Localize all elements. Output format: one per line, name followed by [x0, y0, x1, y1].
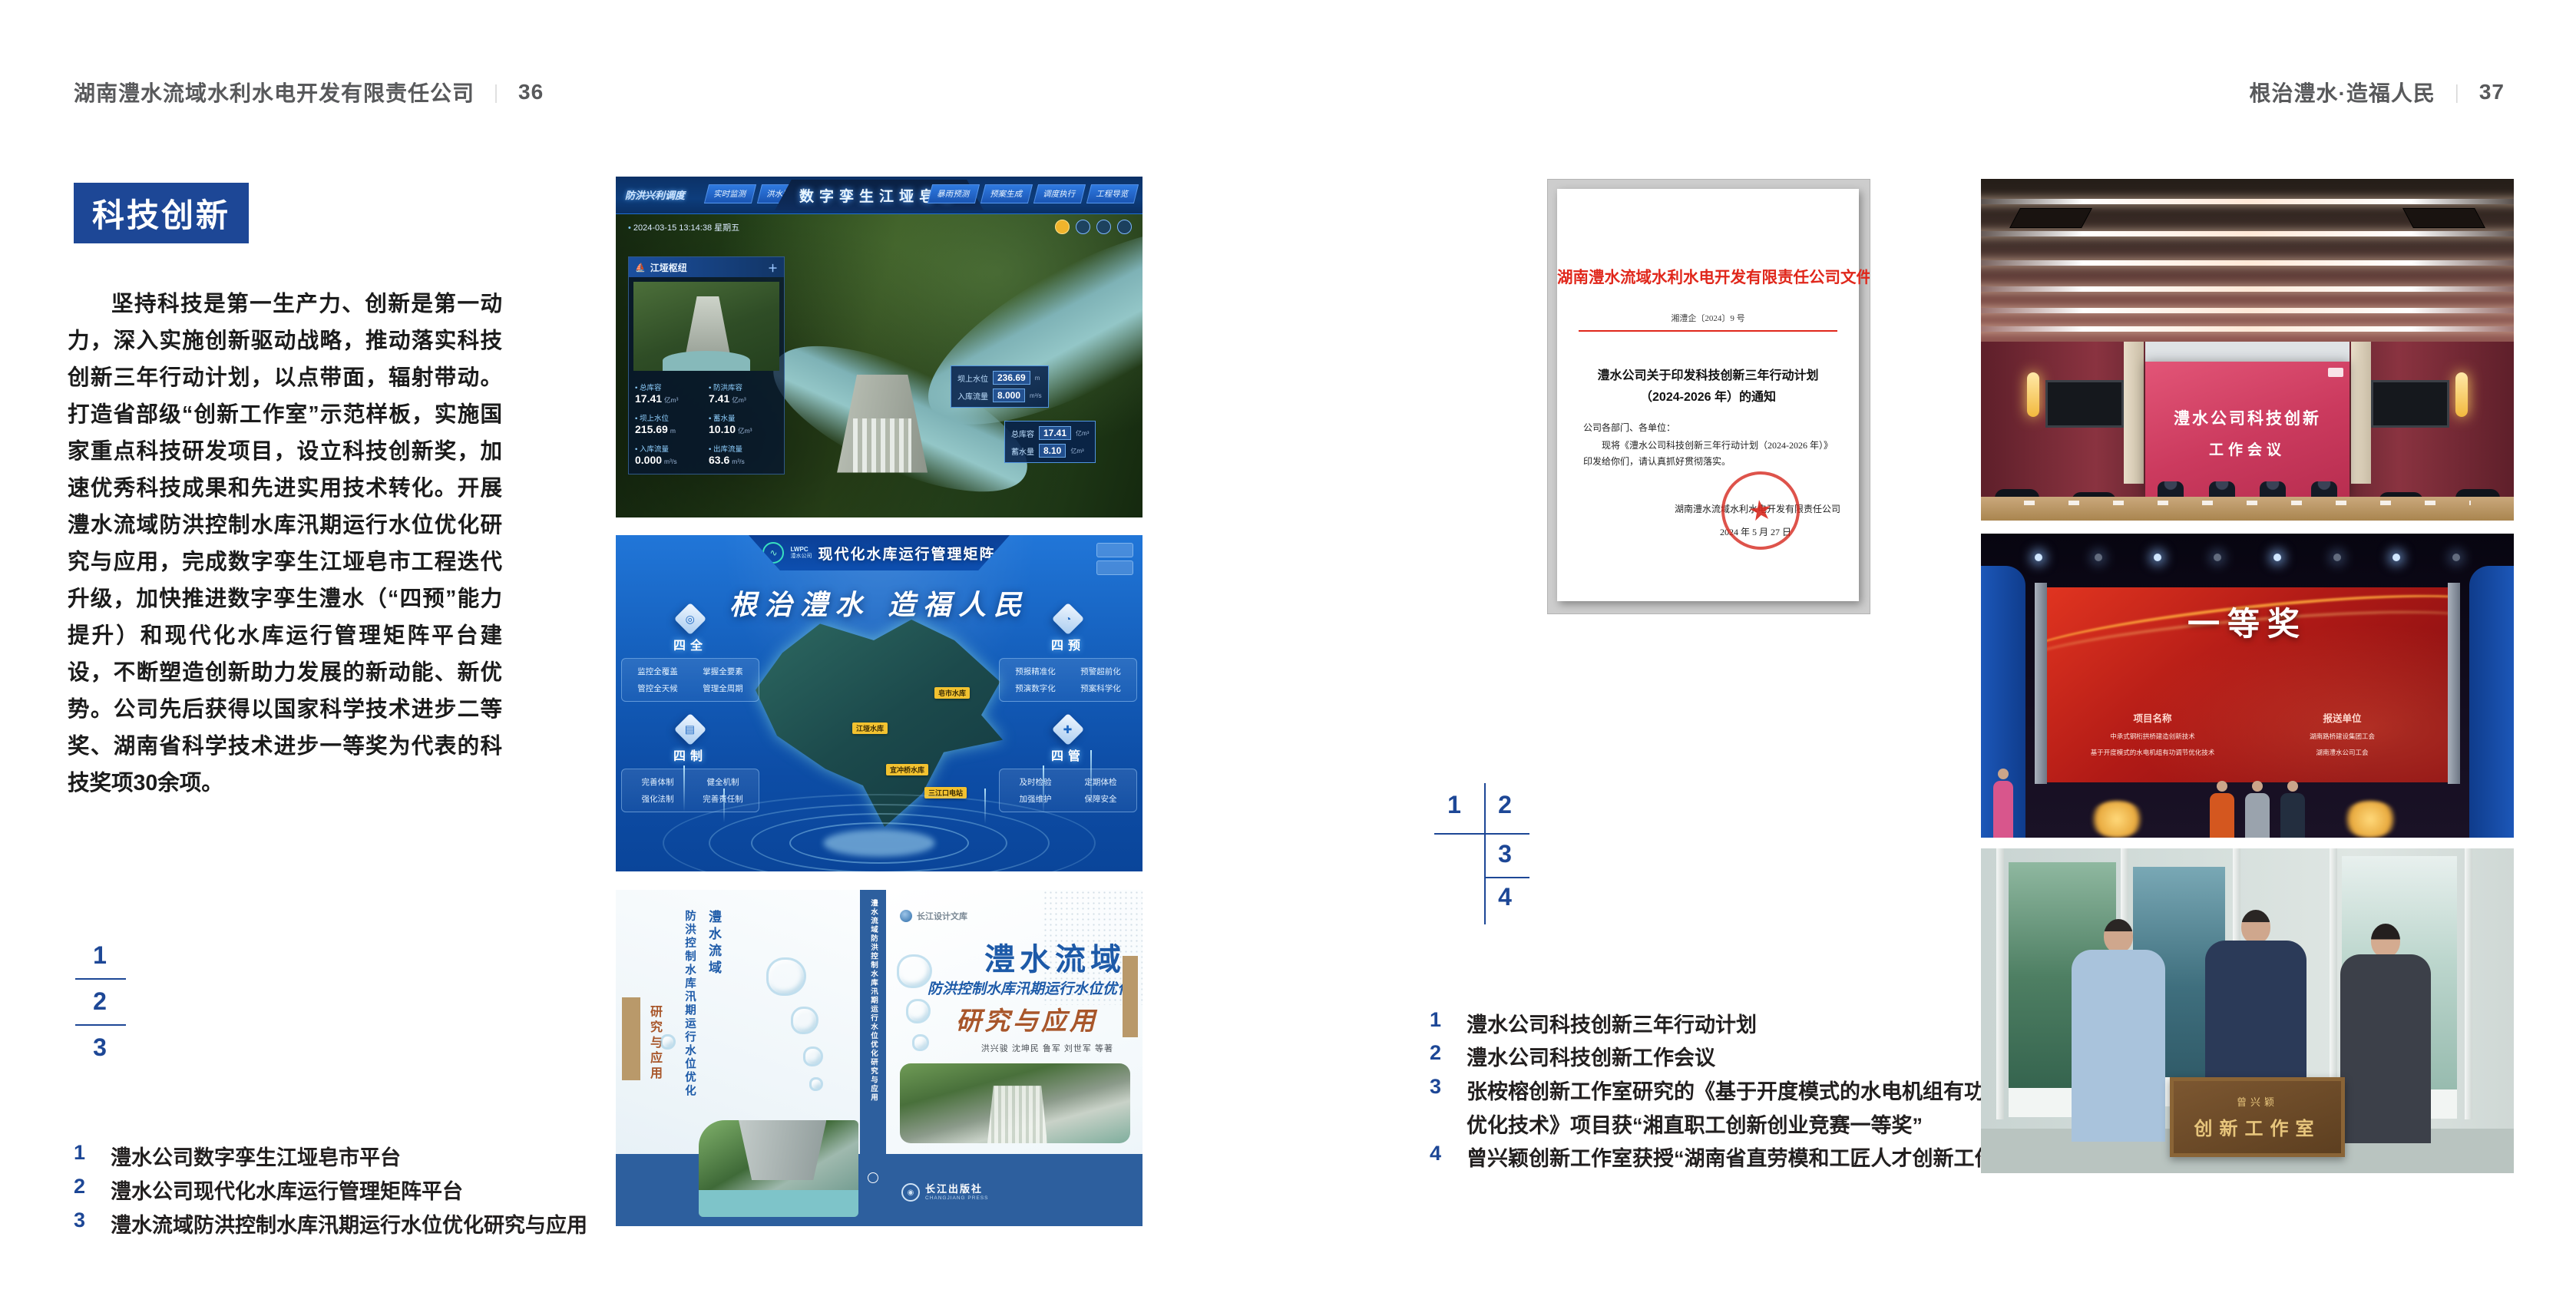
right-tab-group: 暴雨预测 预案生成 调度执行 工程导览	[930, 184, 1136, 203]
company-name: 湖南澧水流域水利水电开发有限责任公司	[74, 77, 475, 107]
water-droplet	[809, 1077, 823, 1091]
dam-thumbnail	[683, 296, 733, 355]
toolbar-icons	[1055, 220, 1132, 234]
spotlight-icon	[2452, 554, 2460, 561]
group-name: 四全	[673, 635, 707, 653]
caption-row: 2 澧水公司现代化水库运行管理矩阵平台	[74, 1175, 463, 1208]
glow-orb	[2342, 801, 2399, 838]
tab-rain-forecast[interactable]: 暴雨预测	[928, 184, 980, 203]
stat-unit: m³/s	[664, 458, 677, 465]
dam-wall	[739, 1120, 826, 1180]
caption-line2: 优化技术》项目获“湘直职工创新创业竞赛一等奖”	[1467, 1109, 2026, 1142]
wall-tv	[2045, 380, 2124, 428]
document-masthead: 湖南澧水流域水利水电开发有限责任公司文件	[1557, 264, 1859, 287]
caption-text: 澧水公司科技创新工作会议	[1467, 1041, 1715, 1075]
person-right	[2340, 924, 2431, 1143]
figure-index-2: 2	[84, 987, 115, 1016]
tooltip-value: 236.69	[993, 371, 1030, 385]
page-number: 36	[518, 80, 544, 104]
group-item: 定期体检	[1070, 776, 1132, 788]
spine-title: 澧水流域防洪控制水库汛期运行水位优化研究与应用	[868, 899, 878, 1103]
body-paragraph: 坚持科技是第一生产力、创新是第一动力，深入实施创新驱动战略，推动落实科技创新三年…	[68, 286, 502, 802]
publisher-name: 长江出版社	[925, 1183, 988, 1195]
tab-project-tour[interactable]: 工程导览	[1086, 184, 1139, 203]
station-panel-header: ⛵ 江垭枢纽 ＋	[629, 257, 784, 277]
section-title: 科技创新	[74, 183, 249, 243]
document-title-line1: 澧水公司关于印发科技创新三年行动计划	[1557, 365, 1859, 387]
tooltip-row: 坝上水位 236.69 m	[957, 371, 1042, 385]
caption-text: 澧水公司现代化水库运行管理矩阵平台	[111, 1175, 463, 1208]
photo-innovation-meeting: 澧水公司科技创新 工作会议	[1981, 179, 2514, 521]
water-droplet	[660, 1034, 676, 1050]
matrix-title: 现代化水库运行管理矩阵	[818, 543, 995, 564]
red-rule	[1579, 330, 1837, 332]
figure-official-document: 湖南澧水流域水利水电开发有限责任公司文件 湘澧企〔2024〕9 号 澧水公司关于…	[1547, 179, 1870, 614]
figure-management-matrix: ∿ LWPC 澧水公司 现代化水库运行管理矩阵 根治澧水 造福人民 皂市水库 江…	[616, 535, 1143, 871]
tooltip-unit: 亿m³	[1076, 429, 1089, 438]
dashboard-brand: 防洪兴利调度	[625, 187, 685, 202]
group-item: 及时检验	[1004, 776, 1066, 788]
tooltip-label: 总库容	[1011, 428, 1034, 439]
stat-label: 坝上水位	[635, 412, 704, 423]
logo-abbr: LWPC	[790, 547, 812, 554]
group-item: 管控全天候	[627, 683, 689, 694]
caption-row: 3 张桉榕创新工作室研究的《基于开度模式的水电机组有功调节 优化技术》项目获“湘…	[1430, 1075, 2026, 1142]
rostrum-people	[2145, 481, 2349, 498]
series-logo-icon	[900, 910, 912, 922]
group-item: 完善体制	[627, 776, 689, 788]
caption-text: 澧水流域防洪控制水库汛期运行水位优化研究与应用	[111, 1208, 587, 1242]
caption-row: 1 澧水公司科技创新三年行动计划	[1430, 1008, 1757, 1042]
figure-index-4: 4	[1490, 883, 1520, 911]
stat-value: 7.41	[709, 392, 729, 405]
caption-row: 1 澧水公司数字孪生江垭皂市平台	[74, 1141, 401, 1175]
desk-papers	[2024, 501, 2472, 505]
cube-icon: ✚	[1052, 713, 1084, 746]
book-spine: 澧水流域防洪控制水库汛期运行水位优化研究与应用	[860, 890, 886, 1226]
group-siquan: ◎ 四全 监控全覆盖 掌握全要素 管控全天候 管理全周期	[625, 607, 756, 702]
logo-text: LWPC 澧水公司	[790, 547, 812, 559]
water-droplet	[803, 1046, 823, 1066]
tooltip-label: 入库流量	[957, 390, 988, 402]
stage-lights	[2035, 546, 2460, 569]
person-head	[1998, 769, 2009, 779]
stat-label: 防洪库容	[709, 382, 778, 392]
series-name: 长江设计文库	[917, 910, 967, 922]
map-label[interactable]: 宜冲桥水库	[886, 764, 928, 775]
light-pillar	[984, 789, 986, 824]
tailwater	[699, 1190, 858, 1217]
group-item: 管理全周期	[692, 683, 754, 694]
spotlight-icon	[2035, 554, 2042, 561]
meeting-screen: 澧水公司科技创新 工作会议	[2145, 362, 2349, 497]
stat-item: 坝上水位 215.69m	[635, 412, 704, 437]
wall-lamp	[2455, 372, 2468, 417]
stat-item: 总库容 17.41亿m³	[635, 382, 704, 406]
index-divider	[1484, 783, 1486, 924]
group-siyu: ◔ 四预 预报精准化 预警超前化 预演数字化 预案科学化	[1003, 607, 1133, 702]
award-unit: 湖南澧水公司工会	[2263, 748, 2422, 757]
tooltip-row: 蓄水量 8.10 亿m³	[1011, 444, 1089, 458]
caption-number: 1	[74, 1141, 92, 1165]
seated-person	[2209, 481, 2235, 498]
person-body	[2280, 793, 2305, 838]
sail-icon: ⛵	[635, 263, 646, 273]
wall-pillar	[2351, 342, 2371, 484]
water-droplet	[791, 1007, 818, 1034]
document-paper: 湖南澧水流域水利水电开发有限责任公司文件 湘澧企〔2024〕9 号 澧水公司关于…	[1557, 189, 1859, 601]
document-number: 湘澧企〔2024〕9 号	[1557, 312, 1859, 324]
caption-number: 3	[74, 1208, 92, 1232]
light-pillar	[1090, 750, 1092, 804]
award-title: 一等奖	[1981, 598, 2514, 645]
document-salutation: 公司各部门、各单位：	[1583, 421, 1675, 434]
stat-item: 出库流量 63.6m³/s	[709, 443, 778, 468]
figure-index-3: 3	[1490, 840, 1520, 868]
stat-label: 总库容	[635, 382, 704, 392]
spotlight-icon	[2273, 554, 2281, 561]
series-badge: 长江设计文库	[900, 910, 967, 922]
ceiling	[1981, 179, 2514, 342]
caption-text: 澧水公司科技创新三年行动计划	[1467, 1008, 1757, 1042]
stat-unit: 亿m³	[738, 427, 752, 435]
person-body	[2245, 793, 2270, 838]
caption-number: 3	[1430, 1075, 1448, 1099]
right-page-header: 根治澧水·造福人民 ｜ 37	[2250, 77, 2505, 107]
map-tooltip: 坝上水位 236.69 m 入库流量 8.000 m³/s	[951, 365, 1049, 408]
tooltip-row: 总库容 17.41 亿m³	[1011, 426, 1089, 440]
light-strip	[1981, 286, 2514, 292]
awardee-silhouette	[2280, 781, 2305, 838]
award-table: 项目名称 报送单位 中承式钢桁拱桥建造创新技术 湖南路桥建设集团工会 基于开度模…	[2073, 710, 2422, 757]
caption-number: 2	[1430, 1041, 1448, 1065]
person-head	[2104, 919, 2133, 953]
tooltip-value: 17.41	[1039, 426, 1071, 440]
person-head	[2287, 781, 2298, 792]
stat-label: 入库流量	[635, 443, 704, 454]
station-panel: ⛵ 江垭枢纽 ＋ 总库容 17.41亿m³ 防洪库容 7.41亿m³ 坝上水位	[628, 256, 785, 474]
group-name: 四制	[673, 746, 707, 764]
stat-item: 防洪库容 7.41亿m³	[709, 382, 778, 406]
tooltip-label: 坝上水位	[957, 372, 988, 384]
layers-icon[interactable]	[1076, 220, 1090, 234]
awardee-silhouette	[2245, 781, 2270, 838]
publisher-name-en: CHANGJIANG PRESS	[925, 1195, 988, 1202]
caption-text: 曾兴颖创新工作室获授“湖南省直劳模和工匠人才创新工作室”	[1467, 1142, 2026, 1175]
light-pillar	[683, 765, 685, 812]
left-page-header: 湖南澧水流域水利水电开发有限责任公司 ｜ 36	[74, 77, 544, 107]
group-item: 健全机制	[692, 776, 754, 788]
tooltip-value: 8.10	[1039, 444, 1066, 458]
tooltip-value: 8.000	[993, 388, 1025, 402]
glow-orb	[2088, 801, 2145, 838]
person-body	[2072, 950, 2165, 1142]
calligraphy-slogan: 根治澧水 造福人民	[729, 583, 1030, 623]
document-title: 澧水公司关于印发科技创新三年行动计划 （2024-2026 年）的通知	[1557, 365, 1859, 408]
matrix-header: ∿ LWPC 澧水公司 现代化水库运行管理矩阵	[749, 535, 1010, 570]
caption-text: 张桉榕创新工作室研究的《基于开度模式的水电机组有功调节 优化技术》项目获“湘直职…	[1467, 1075, 2026, 1142]
front-title-main: 研究与应用	[956, 1000, 1098, 1037]
caption-line1: 张桉榕创新工作室研究的《基于开度模式的水电机组有功调节	[1467, 1075, 2026, 1109]
spine-logo-icon	[868, 1172, 878, 1183]
cube-icon: ◔	[1052, 603, 1084, 635]
screen-title-line1: 澧水公司科技创新	[2174, 406, 2321, 429]
caption-number: 1	[1430, 1008, 1448, 1032]
award-col-header: 报送单位	[2263, 710, 2422, 725]
award-col-header: 项目名称	[2073, 710, 2232, 725]
figure-book-cover: 澧水流域 防洪控制水库汛期运行水位优化 研究与应用 长江设计文库 澧水流域 防洪…	[616, 890, 1143, 1226]
person-body	[2340, 954, 2431, 1143]
award-project: 基于开度模式的水电机组有功调节优化技术	[2073, 748, 2232, 757]
stat-unit: 亿m³	[664, 396, 678, 404]
photo-award-ceremony: 一等奖 项目名称 报送单位 中承式钢桁拱桥建造创新技术 湖南路桥建设集团工会 基…	[1981, 534, 2514, 838]
group-item: 预案科学化	[1070, 683, 1132, 694]
seated-person	[2158, 481, 2184, 498]
group-panel: 预报精准化 预警超前化 预演数字化 预案科学化	[999, 658, 1137, 702]
person-body	[2210, 793, 2234, 838]
alert-icon[interactable]	[1055, 220, 1070, 234]
cube-icon: ◎	[674, 603, 706, 635]
expand-icon[interactable]: ＋	[768, 260, 778, 275]
tooltip-unit: m³/s	[1030, 392, 1042, 399]
tab-realtime-monitor[interactable]: 实时监测	[704, 184, 756, 203]
tab-plan-generate[interactable]: 预案生成	[980, 184, 1033, 203]
stat-label: 蓄水量	[709, 412, 778, 423]
tan-block	[1123, 956, 1138, 1037]
light-strip	[1981, 326, 2514, 332]
plaque-line1: 曾兴颖	[2237, 1094, 2278, 1109]
water-thumbnail	[663, 351, 750, 371]
award-project: 中承式钢桁拱桥建造创新技术	[2073, 732, 2232, 741]
slogan-text: 根治澧水·造福人民	[2250, 77, 2435, 107]
group-panel: 监控全覆盖 掌握全要素 管控全天候 管理全周期	[621, 658, 759, 702]
map-label[interactable]: 江垭水库	[852, 722, 888, 734]
stat-value: 10.10	[709, 423, 736, 435]
tan-block	[622, 997, 640, 1080]
front-title-region: 澧水流域	[984, 934, 1126, 979]
tooltip-unit: m	[1035, 375, 1040, 382]
back-title-region: 澧水流域	[704, 910, 723, 1098]
screen-title-line2: 工作会议	[2209, 438, 2286, 459]
wall-lamp	[2027, 372, 2039, 417]
stat-unit: m³/s	[732, 458, 745, 465]
tooltip-unit: 亿m³	[1070, 447, 1083, 455]
header-divider: ｜	[487, 79, 506, 106]
group-name: 四预	[1051, 635, 1085, 653]
ceiling-vent	[2009, 208, 2092, 228]
spotlight-icon	[2333, 554, 2341, 561]
person-head	[2217, 781, 2227, 792]
caption-row: 2 澧水公司科技创新工作会议	[1430, 1041, 1715, 1075]
figure-index-2: 2	[1490, 791, 1520, 819]
wall-pillar	[2124, 342, 2144, 484]
star-icon: ★	[1746, 493, 1775, 528]
wall-tv	[2371, 380, 2449, 428]
stat-unit: m	[670, 427, 676, 435]
light-strip	[1981, 199, 2514, 204]
window-mullion	[2465, 848, 2472, 1119]
dam-photo	[900, 1063, 1130, 1143]
water-droplet	[766, 957, 806, 996]
person-head	[2371, 924, 2400, 957]
spillway	[987, 1086, 1047, 1143]
brochure-spread: 湖南澧水流域水利水电开发有限责任公司 ｜ 36 根治澧水·造福人民 ｜ 37 科…	[0, 0, 2576, 1306]
window-mullion	[1996, 848, 2004, 1119]
stat-unit: 亿m³	[732, 396, 746, 404]
light-strip	[1981, 308, 2514, 313]
group-name: 四管	[1051, 746, 1085, 764]
photo-workshop-plaque: 曾兴颖 创新工作室	[1981, 848, 2514, 1173]
toolbar-chip[interactable]	[1096, 543, 1133, 557]
group-item: 预警超前化	[1070, 666, 1132, 677]
stat-label: 出库流量	[709, 443, 778, 454]
awardee-silhouette	[2210, 781, 2234, 838]
publisher-logo: ◉ 长江出版社 CHANGJIANG PRESS	[901, 1183, 988, 1202]
group-item: 预演数字化	[1004, 683, 1066, 694]
host-silhouette	[1993, 769, 2013, 838]
caption-row: 4 曾兴颖创新工作室获授“湖南省直劳模和工匠人才创新工作室”	[1430, 1142, 2026, 1175]
publisher-icon: ◉	[901, 1183, 920, 1202]
index-divider	[75, 978, 126, 980]
spotlight-icon	[2214, 554, 2221, 561]
stat-value: 17.41	[635, 392, 662, 405]
person-body	[1993, 781, 2013, 838]
award-unit: 湖南路桥建设集团工会	[2263, 732, 2422, 741]
stat-value: 0.000	[635, 454, 662, 466]
index-divider	[1434, 833, 1529, 835]
figure-digital-twin-dashboard: 防洪兴利调度 实时监测 洪水预报 防洪预警 数字孪生江垭皂市 暴雨预测 预案生成…	[616, 177, 1143, 517]
figure-index-3: 3	[84, 1033, 115, 1062]
caption-number: 4	[1430, 1142, 1448, 1165]
group-item: 掌握全要素	[692, 666, 754, 677]
map-label[interactable]: 皂市水库	[934, 687, 970, 699]
figure-index-1: 1	[84, 941, 115, 970]
spotlight-icon	[2095, 554, 2102, 561]
station-thumbnail	[633, 282, 779, 371]
station-stats: 总库容 17.41亿m³ 防洪库容 7.41亿m³ 坝上水位 215.69m 蓄…	[629, 375, 784, 474]
group-item: 预报精准化	[1004, 666, 1066, 677]
water-droplet	[912, 1034, 929, 1051]
back-title-sub: 防洪控制水库汛期运行水位优化	[682, 910, 698, 1098]
tooltip-label: 蓄水量	[1011, 445, 1034, 457]
page-number: 37	[2479, 80, 2505, 104]
group-item: 监控全覆盖	[627, 666, 689, 677]
stat-value: 63.6	[709, 454, 729, 466]
stat-item: 蓄水量 10.10亿m³	[709, 412, 778, 437]
caption-text: 澧水公司数字孪生江垭皂市平台	[111, 1141, 401, 1175]
stat-value: 215.69	[635, 423, 668, 435]
dashboard-header: 防洪兴利调度 实时监测 洪水预报 防洪预警 数字孪生江垭皂市 暴雨预测 预案生成…	[616, 177, 1143, 214]
figure-index-1: 1	[1439, 791, 1470, 819]
front-title-sub: 防洪控制水库汛期运行水位优化	[928, 977, 1132, 998]
document-title-line2: （2024-2026 年）的通知	[1557, 387, 1859, 408]
spillway	[853, 418, 911, 472]
back-vertical-title: 澧水流域 防洪控制水库汛期运行水位优化	[682, 910, 723, 1098]
authors-line: 洪兴骏 沈坤民 鲁军 刘世军 等著	[981, 1042, 1113, 1054]
person-head	[2241, 910, 2270, 944]
wooden-plaque: 曾兴颖 创新工作室	[2170, 1077, 2345, 1157]
tooltip-row: 入库流量 8.000 m³/s	[957, 388, 1042, 402]
water-droplet	[906, 999, 931, 1023]
document-body: 现将《澧水公司科技创新三年行动计划（2024-2026 年）》印发给你们，请认真…	[1583, 438, 1836, 470]
ripple-core	[824, 830, 934, 856]
light-strip	[1981, 260, 2514, 266]
light-strip	[1981, 231, 2514, 236]
person-head	[2252, 781, 2263, 792]
plaque-line2: 创新工作室	[2194, 1113, 2321, 1140]
locate-icon[interactable]	[1096, 220, 1111, 234]
seated-person	[2311, 481, 2337, 498]
light-pillar	[1043, 765, 1044, 813]
spotlight-icon	[2392, 554, 2400, 561]
seated-person	[2260, 481, 2286, 498]
index-divider	[75, 1024, 126, 1026]
logo-name: 澧水公司	[790, 554, 812, 560]
spotlight-icon	[2154, 554, 2161, 561]
datetime-readout: 2024-03-15 13:14:38 星期五	[628, 221, 739, 233]
caption-row: 3 澧水流域防洪控制水库汛期运行水位优化研究与应用	[74, 1208, 587, 1242]
map-info-panel: 总库容 17.41 亿m³ 蓄水量 8.10 亿m³	[1004, 421, 1096, 463]
toolbar-chip[interactable]	[1096, 560, 1133, 575]
official-seal: ★	[1716, 466, 1804, 554]
header-divider: ｜	[2448, 79, 2467, 106]
index-divider	[1484, 877, 1529, 878]
light-pillar	[723, 789, 725, 822]
ceiling-vent	[2402, 208, 2485, 228]
person-left	[2072, 919, 2165, 1142]
settings-icon[interactable]	[1117, 220, 1132, 234]
dam-photo-2	[699, 1120, 858, 1217]
screen-logo-icon	[2328, 368, 2343, 377]
caption-number: 2	[74, 1175, 92, 1199]
cube-icon: ▤	[674, 713, 706, 746]
stat-item: 入库流量 0.000m³/s	[635, 443, 704, 468]
tab-dispatch-execute[interactable]: 调度执行	[1033, 184, 1086, 203]
station-name: 江垭枢纽	[650, 261, 687, 274]
